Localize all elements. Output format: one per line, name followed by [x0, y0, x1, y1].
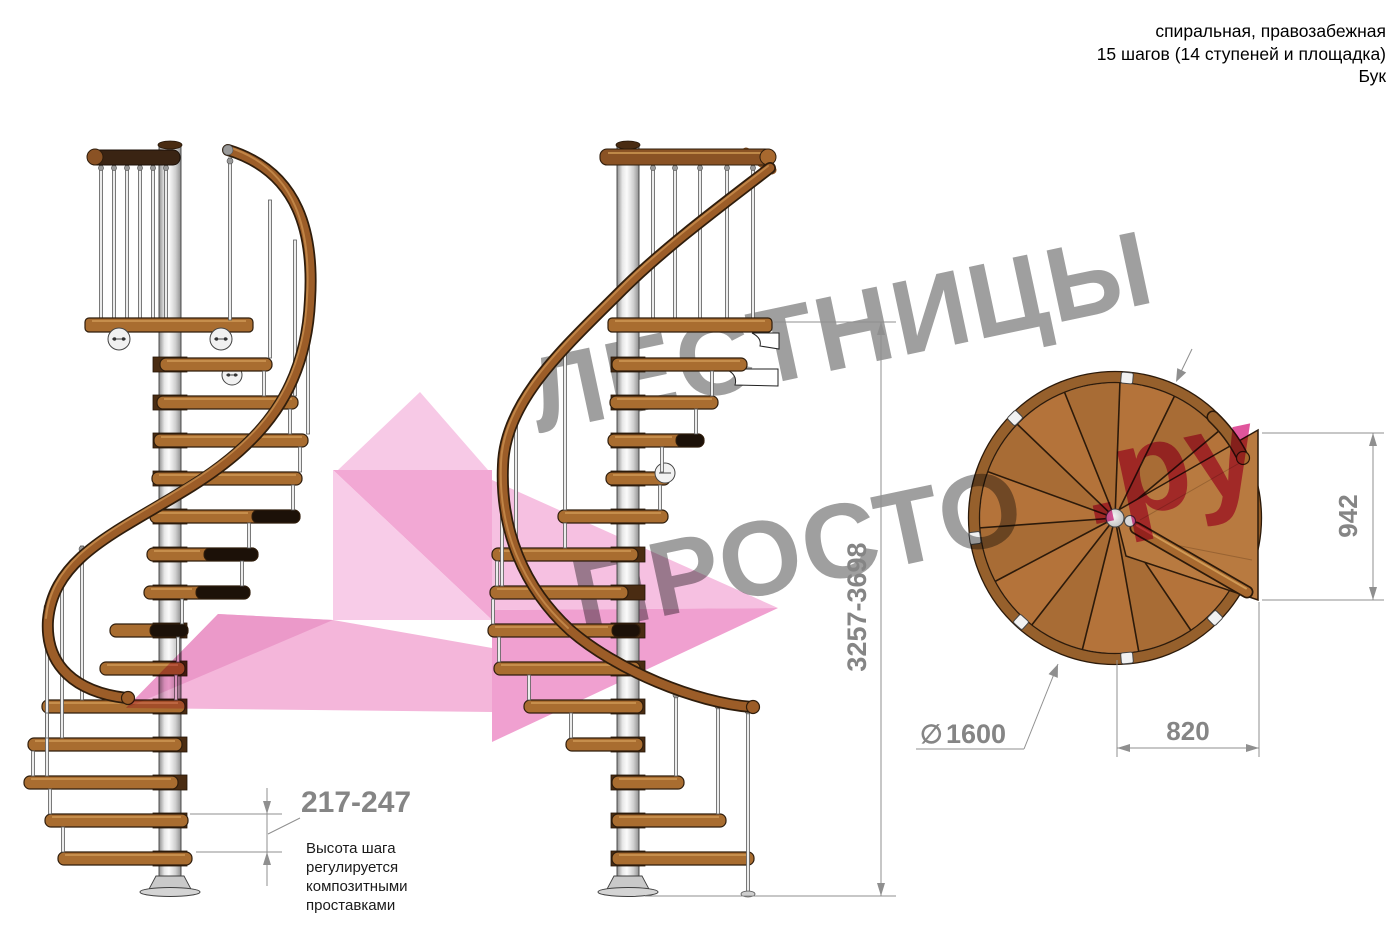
dim-diameter-label: 1600 [946, 719, 1006, 749]
svg-text:проставками: проставками [306, 897, 395, 914]
drawing-page: ЛЕСТНИЦЫ ПРОСТО.ру [0, 0, 1400, 939]
dim-step-height-note: Высота шага регулируется композитными пр… [306, 840, 408, 914]
title-material: Бук [1097, 65, 1386, 88]
title-type: спиральная, правозабежная [1097, 20, 1386, 43]
svg-text:композитными: композитными [306, 878, 408, 895]
dim-plan-depth: 820 [1117, 602, 1259, 757]
svg-text:регулируется: регулируется [306, 859, 398, 876]
dim-step-height: 217-247 Высота шага регулируется компози… [190, 786, 411, 914]
dim-step-height-label: 217-247 [301, 786, 411, 819]
dim-diameter: ∅ 1600 [916, 662, 1063, 749]
title-steps: 15 шагов (14 ступеней и площадка) [1097, 43, 1386, 66]
dim-plan-width: 942 [1262, 433, 1384, 600]
svg-text:Высота шага: Высота шага [306, 840, 396, 857]
dim-total-height: 3257-3698 [645, 322, 896, 896]
dimensions-layer: 3257-3698 217-247 Высота шага регулирует… [0, 0, 1400, 939]
dim-plan-width-label: 942 [1333, 494, 1363, 537]
dim-plan-depth-label: 820 [1166, 716, 1209, 746]
dim-total-height-label: 3257-3698 [842, 542, 872, 671]
leader-plan-rail [1172, 349, 1192, 384]
title-block: спиральная, правозабежная 15 шагов (14 с… [1097, 20, 1386, 88]
dim-diameter-symbol: ∅ [920, 719, 943, 749]
